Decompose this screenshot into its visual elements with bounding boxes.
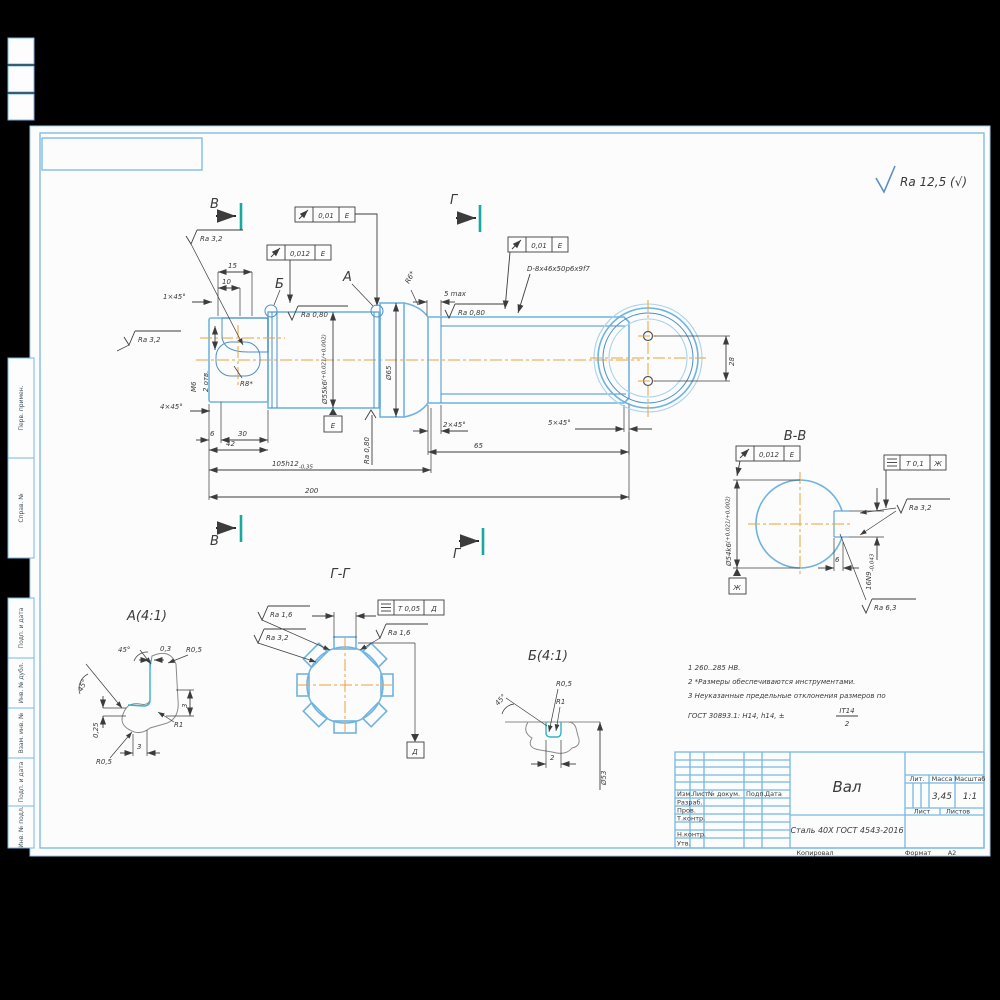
svg-text:Ra 6,3: Ra 6,3 — [874, 604, 897, 612]
col-data: Дата — [765, 790, 782, 798]
svg-text:5×45°: 5×45° — [548, 419, 571, 427]
svg-text:А: А — [342, 270, 352, 285]
svg-text:Е: Е — [345, 212, 350, 220]
margin-box — [8, 66, 34, 92]
svg-text:1×45°: 1×45° — [163, 293, 186, 301]
svg-text:R1: R1 — [174, 721, 183, 729]
svg-text:Ж: Ж — [933, 460, 942, 468]
section-bb-title: В-В — [784, 429, 807, 444]
svg-text:Д: Д — [430, 605, 437, 613]
svg-text:М6: М6 — [190, 381, 198, 392]
svg-text:10: 10 — [222, 278, 231, 286]
svg-text:3: 3 — [181, 704, 189, 708]
material-spec: Сталь 40Х ГОСТ 4543-2016 — [790, 826, 903, 835]
note-line-3: 3 Неуказанные предельные отклонения разм… — [688, 692, 886, 700]
svg-text:Ra 3,2: Ra 3,2 — [200, 235, 223, 243]
svg-text:Ra 3,2: Ra 3,2 — [909, 504, 932, 512]
svg-text:Е: Е — [790, 451, 795, 459]
svg-text:Ra 3,2: Ra 3,2 — [266, 634, 289, 642]
hdr-mass: Масса — [932, 775, 953, 783]
svg-text:Ra 1,6: Ra 1,6 — [270, 611, 293, 619]
margin-box — [8, 38, 34, 64]
svg-text:4×45°: 4×45° — [160, 403, 183, 411]
svg-text:2 отв.: 2 отв. — [202, 371, 210, 392]
mass-value: 3,45 — [932, 792, 952, 802]
svg-text:Е: Е — [558, 242, 563, 250]
svg-text:5 max: 5 max — [444, 290, 467, 298]
svg-text:D-8x46x50p6x9f7: D-8x46x50p6x9f7 — [527, 265, 590, 273]
drawing-canvas: Перв. примен. Справ. № Подп. и дата Инв.… — [0, 0, 1000, 1000]
scale-value: 1:1 — [963, 792, 977, 802]
margin-strip-label: Справ. № — [18, 493, 25, 522]
svg-text:R0,5: R0,5 — [96, 758, 113, 766]
svg-text:R8*: R8* — [240, 380, 253, 388]
svg-text:0,012: 0,012 — [759, 451, 780, 459]
svg-text:42: 42 — [226, 440, 235, 448]
margin-strip-label: Инв. № подл. — [18, 806, 25, 847]
note-line-2: 2 *Размеры обеспечиваются инструментами. — [688, 678, 855, 686]
svg-text:0,01: 0,01 — [531, 242, 547, 250]
format-value: А2 — [948, 849, 957, 857]
svg-text:В: В — [210, 197, 219, 212]
datum-zh-flag: Ж — [732, 584, 741, 592]
svg-text:28: 28 — [728, 357, 736, 366]
col-list: Лист — [692, 790, 709, 798]
note-line-1: 1 260..285 НВ. — [688, 664, 740, 672]
svg-text:45°: 45° — [118, 646, 130, 654]
drawing-viewer: Перв. примен. Справ. № Подп. и дата Инв.… — [0, 0, 1000, 1000]
svg-text:R1: R1 — [556, 698, 565, 706]
svg-text:0,01: 0,01 — [318, 212, 334, 220]
drawing-sheet — [30, 126, 990, 856]
gg-symmetry-frame: Т 0,05 Д — [378, 600, 444, 615]
margin-box — [8, 94, 34, 120]
row-prov: Пров. — [677, 807, 696, 815]
row-utv: Утв. — [677, 840, 691, 848]
svg-text:IT14: IT14 — [839, 707, 854, 715]
svg-text:0,012: 0,012 — [290, 250, 311, 258]
hdr-scale: Масштаб — [955, 775, 986, 783]
margin-strip-label: Подп. и дата — [18, 607, 25, 648]
detail-a-title: А(4:1) — [126, 609, 167, 624]
margin-strip-label: Инв. № дубл. — [18, 662, 25, 703]
svg-text:Е: Е — [321, 250, 326, 258]
margin-strip-label: Подп. и дата — [18, 761, 25, 802]
svg-text:3: 3 — [137, 743, 141, 751]
svg-text:Т 0,1: Т 0,1 — [906, 460, 924, 468]
svg-text:В: В — [210, 534, 219, 549]
svg-text:R0,5: R0,5 — [186, 646, 203, 654]
svg-text:Б: Б — [275, 277, 284, 292]
row-razrab: Разраб. — [677, 799, 703, 807]
svg-text:200: 200 — [305, 487, 319, 495]
svg-text:65: 65 — [474, 442, 483, 450]
svg-text:30: 30 — [238, 430, 247, 438]
svg-text:Т 0,05: Т 0,05 — [398, 605, 421, 613]
col-doc: № докум. — [707, 790, 740, 798]
svg-text:15: 15 — [228, 262, 237, 270]
section-gg-title: Г-Г — [330, 567, 351, 582]
datum-e-flag: Е — [331, 422, 336, 430]
datum-d-flag: Д — [411, 748, 418, 756]
svg-text:Ra 0,80: Ra 0,80 — [458, 309, 486, 317]
note-line-4: ГОСТ 30893.1: Н14, h14, ± — [688, 712, 785, 720]
detail-b-title: Б(4:1) — [528, 649, 568, 664]
svg-text:6: 6 — [210, 430, 215, 438]
svg-text:Ra 0,80: Ra 0,80 — [301, 311, 329, 319]
svg-text:R0,5: R0,5 — [556, 680, 573, 688]
svg-text:Ra 0,80: Ra 0,80 — [363, 436, 371, 464]
footer-kopiroval: Копировал — [796, 849, 833, 857]
svg-text:Ra 3,2: Ra 3,2 — [138, 336, 161, 344]
svg-text:Ø65: Ø65 — [385, 365, 393, 381]
hdr-listov: Листов — [946, 808, 970, 816]
svg-text:Ø53: Ø53 — [600, 771, 608, 786]
row-nkontr: Н.контр. — [677, 831, 706, 839]
hdr-lit: Лит. — [910, 775, 925, 783]
hdr-list: Лист — [914, 808, 931, 816]
svg-text:0,25: 0,25 — [92, 722, 100, 738]
svg-text:6: 6 — [835, 556, 840, 564]
row-tkontr: Т.контр. — [676, 815, 705, 823]
svg-text:2×45°: 2×45° — [443, 421, 466, 429]
col-podp: Подп. — [746, 790, 766, 798]
col-izm: Изм. — [677, 790, 692, 798]
svg-text:0,3: 0,3 — [160, 645, 171, 653]
part-name: Вал — [832, 778, 861, 796]
margin-strip-label: Взам. инв. № — [18, 713, 25, 754]
general-roughness-text: Ra 12,5 (√) — [900, 175, 967, 189]
footer-format: Формат — [905, 849, 932, 857]
margin-strip-label: Перв. примен. — [18, 385, 25, 430]
svg-text:2: 2 — [845, 720, 850, 728]
svg-text:Ra 1,6: Ra 1,6 — [388, 629, 411, 637]
svg-text:2: 2 — [550, 754, 555, 762]
